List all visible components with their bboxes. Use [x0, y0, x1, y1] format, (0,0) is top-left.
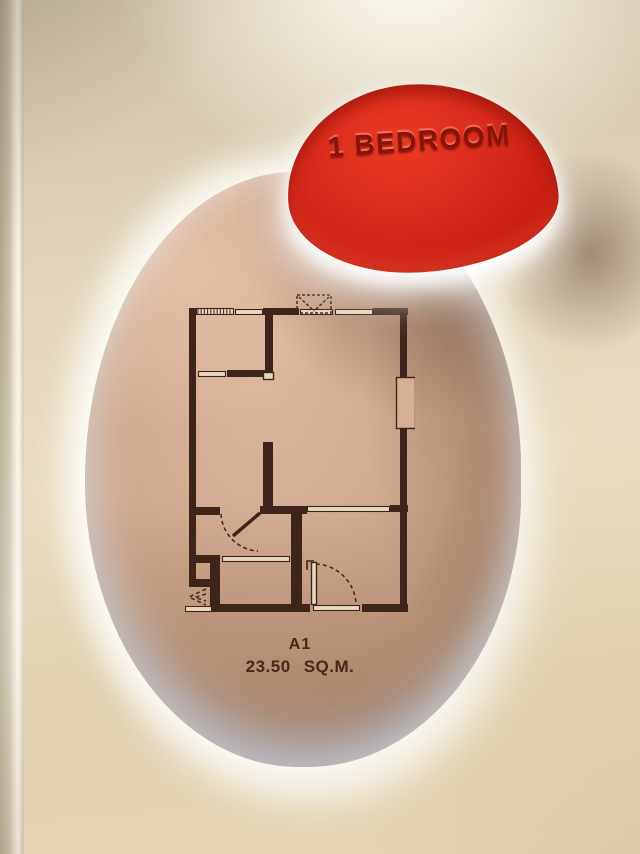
unit-area-label: 23.50SQ.M. — [185, 657, 415, 677]
photo-scene: A1 23.50SQ.M. 1 BEDROOM — [0, 0, 640, 854]
unit-label-block: A1 23.50SQ.M. — [185, 636, 415, 677]
wall-corner-highlight — [0, 0, 24, 854]
sign-label: 1 BEDROOM — [327, 119, 512, 164]
unit-area-value: 23.50 — [246, 657, 291, 676]
floor-plan-svg — [185, 285, 415, 619]
unit-name-label: A1 — [185, 636, 415, 654]
unit-area-unit: SQ.M. — [304, 657, 355, 676]
